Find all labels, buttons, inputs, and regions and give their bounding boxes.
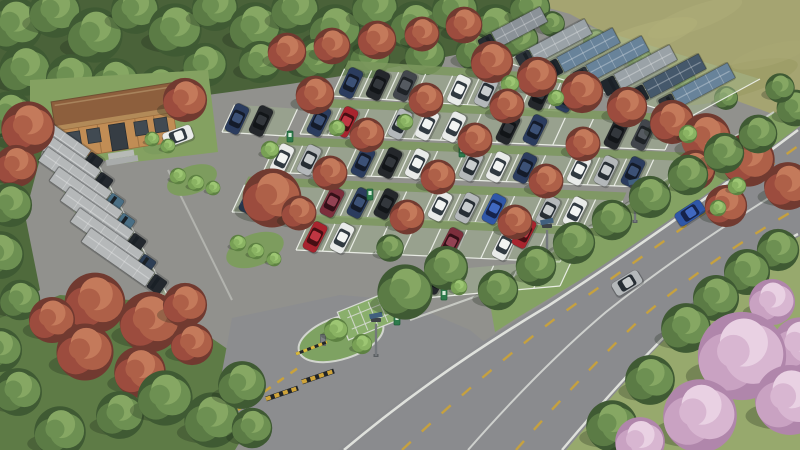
canopy — [79, 22, 99, 42]
canopy — [562, 233, 578, 249]
canopy — [4, 156, 20, 172]
canopy — [672, 316, 690, 334]
canopy — [717, 335, 750, 368]
canopy — [209, 184, 214, 189]
canopy — [78, 288, 100, 310]
canopy — [160, 17, 180, 37]
charger-screen — [442, 291, 445, 295]
canopy — [573, 136, 586, 149]
canopy — [39, 309, 56, 326]
canopy — [320, 165, 333, 178]
canopy — [191, 179, 197, 185]
canopy — [356, 339, 363, 346]
panel — [154, 117, 169, 133]
canopy — [416, 92, 429, 105]
canopy — [683, 130, 690, 137]
canopy — [133, 307, 155, 329]
canopy — [149, 385, 169, 405]
canopy — [228, 374, 246, 392]
aerial-parking-lot-render — [0, 0, 800, 450]
canopy — [173, 89, 189, 105]
canopy — [505, 214, 518, 227]
canopy — [332, 124, 338, 130]
canopy — [329, 324, 338, 333]
canopy — [713, 204, 719, 210]
canopy — [106, 404, 124, 422]
canopy — [125, 360, 144, 379]
canopy — [774, 175, 792, 193]
canopy — [505, 80, 512, 87]
canopy — [601, 210, 616, 225]
charger-screen — [288, 133, 291, 137]
canopy — [480, 52, 496, 68]
canopy — [4, 381, 22, 399]
canopy — [772, 81, 783, 92]
canopy — [525, 256, 540, 271]
canopy — [551, 94, 557, 100]
canopy — [164, 142, 169, 147]
canopy — [734, 261, 751, 278]
ev-charger — [441, 289, 447, 300]
canopy — [400, 118, 406, 124]
canopy — [322, 37, 336, 51]
canopy — [357, 127, 370, 140]
ev-charger — [367, 189, 373, 200]
canopy — [251, 247, 257, 253]
canopy — [10, 58, 29, 77]
lamp-pole — [375, 324, 377, 356]
canopy — [770, 383, 796, 409]
canopy — [233, 239, 239, 245]
canopy — [193, 54, 209, 70]
canopy — [241, 418, 256, 433]
charger-screen — [368, 191, 371, 195]
canopy — [173, 172, 179, 178]
canopy — [69, 338, 90, 359]
panel — [86, 128, 101, 144]
canopy — [626, 430, 644, 448]
canopy — [454, 16, 468, 30]
canopy — [276, 43, 290, 57]
canopy — [13, 115, 33, 135]
canopy — [248, 52, 264, 68]
canopy — [180, 334, 196, 350]
canopy — [660, 111, 676, 127]
canopy — [304, 86, 318, 100]
canopy — [40, 0, 59, 19]
canopy — [766, 240, 782, 256]
canopy — [732, 182, 739, 189]
scene-svg — [0, 0, 800, 450]
canopy — [428, 169, 441, 182]
canopy — [148, 135, 153, 140]
canopy — [255, 184, 277, 206]
canopy — [785, 99, 799, 113]
canopy — [570, 82, 586, 98]
canopy — [759, 291, 776, 308]
canopy — [677, 165, 692, 180]
canopy — [465, 132, 478, 145]
canopy — [497, 98, 510, 111]
panel — [134, 120, 149, 136]
canopy — [597, 414, 616, 433]
canopy — [389, 279, 409, 299]
canopy — [265, 146, 272, 153]
canopy — [9, 290, 24, 305]
canopy — [382, 241, 392, 251]
canopy — [412, 26, 425, 39]
canopy — [270, 255, 275, 260]
canopy — [747, 125, 761, 139]
canopy — [196, 407, 216, 427]
canopy — [0, 12, 20, 32]
ev-charger — [287, 131, 293, 142]
canopy — [397, 209, 410, 222]
canopy — [536, 173, 549, 186]
canopy — [703, 287, 720, 304]
canopy — [45, 420, 64, 439]
canopy — [173, 294, 189, 310]
canopy — [526, 67, 541, 82]
canopy — [289, 205, 302, 218]
canopy — [434, 257, 450, 273]
canopy — [454, 283, 460, 289]
canopy — [636, 368, 654, 386]
canopy — [616, 97, 631, 112]
canopy — [679, 398, 706, 425]
canopy — [487, 280, 502, 295]
canopy — [713, 143, 728, 158]
canopy — [638, 187, 654, 203]
canopy — [366, 31, 380, 45]
canopy — [240, 16, 259, 35]
